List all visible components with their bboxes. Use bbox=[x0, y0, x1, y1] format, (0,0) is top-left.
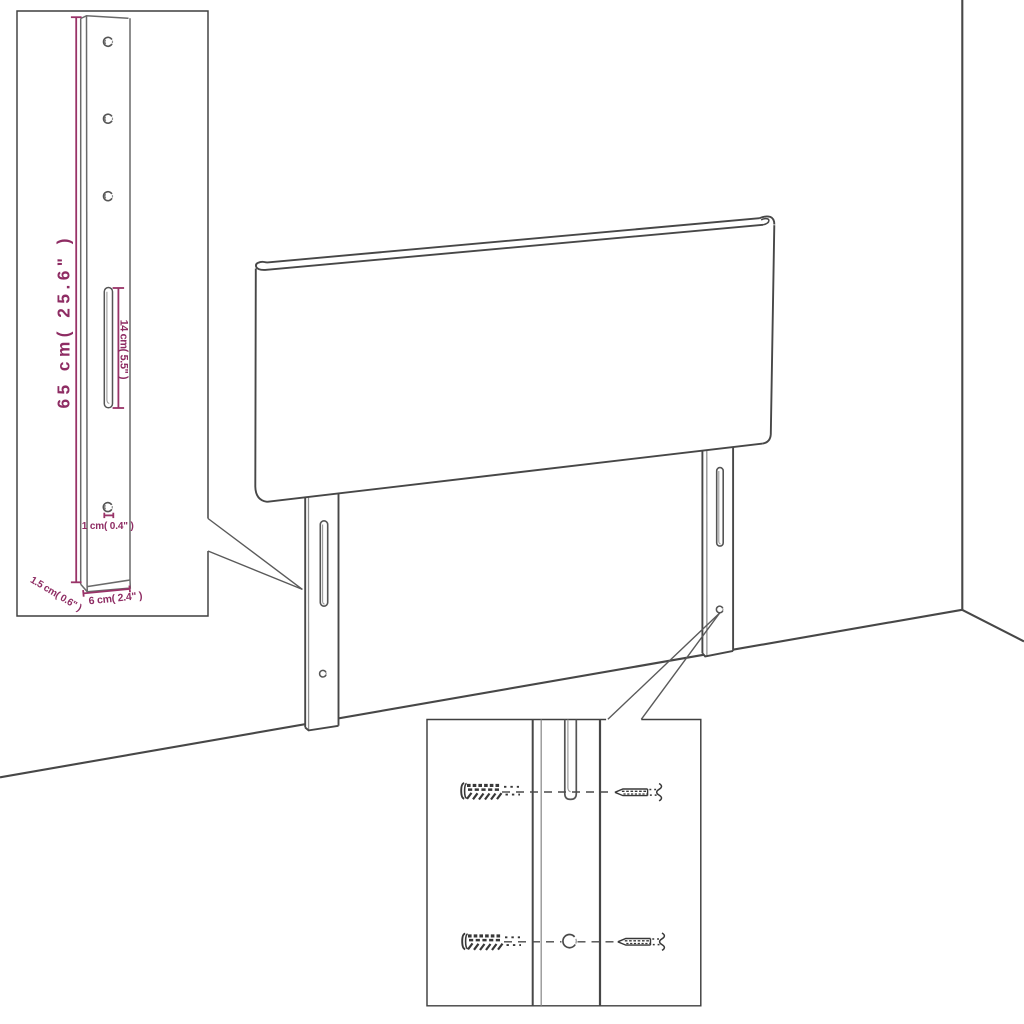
svg-text:1 cm( 0.4" ): 1 cm( 0.4" ) bbox=[82, 521, 134, 532]
svg-text:14 cm( 5.5" ): 14 cm( 5.5" ) bbox=[118, 320, 130, 380]
